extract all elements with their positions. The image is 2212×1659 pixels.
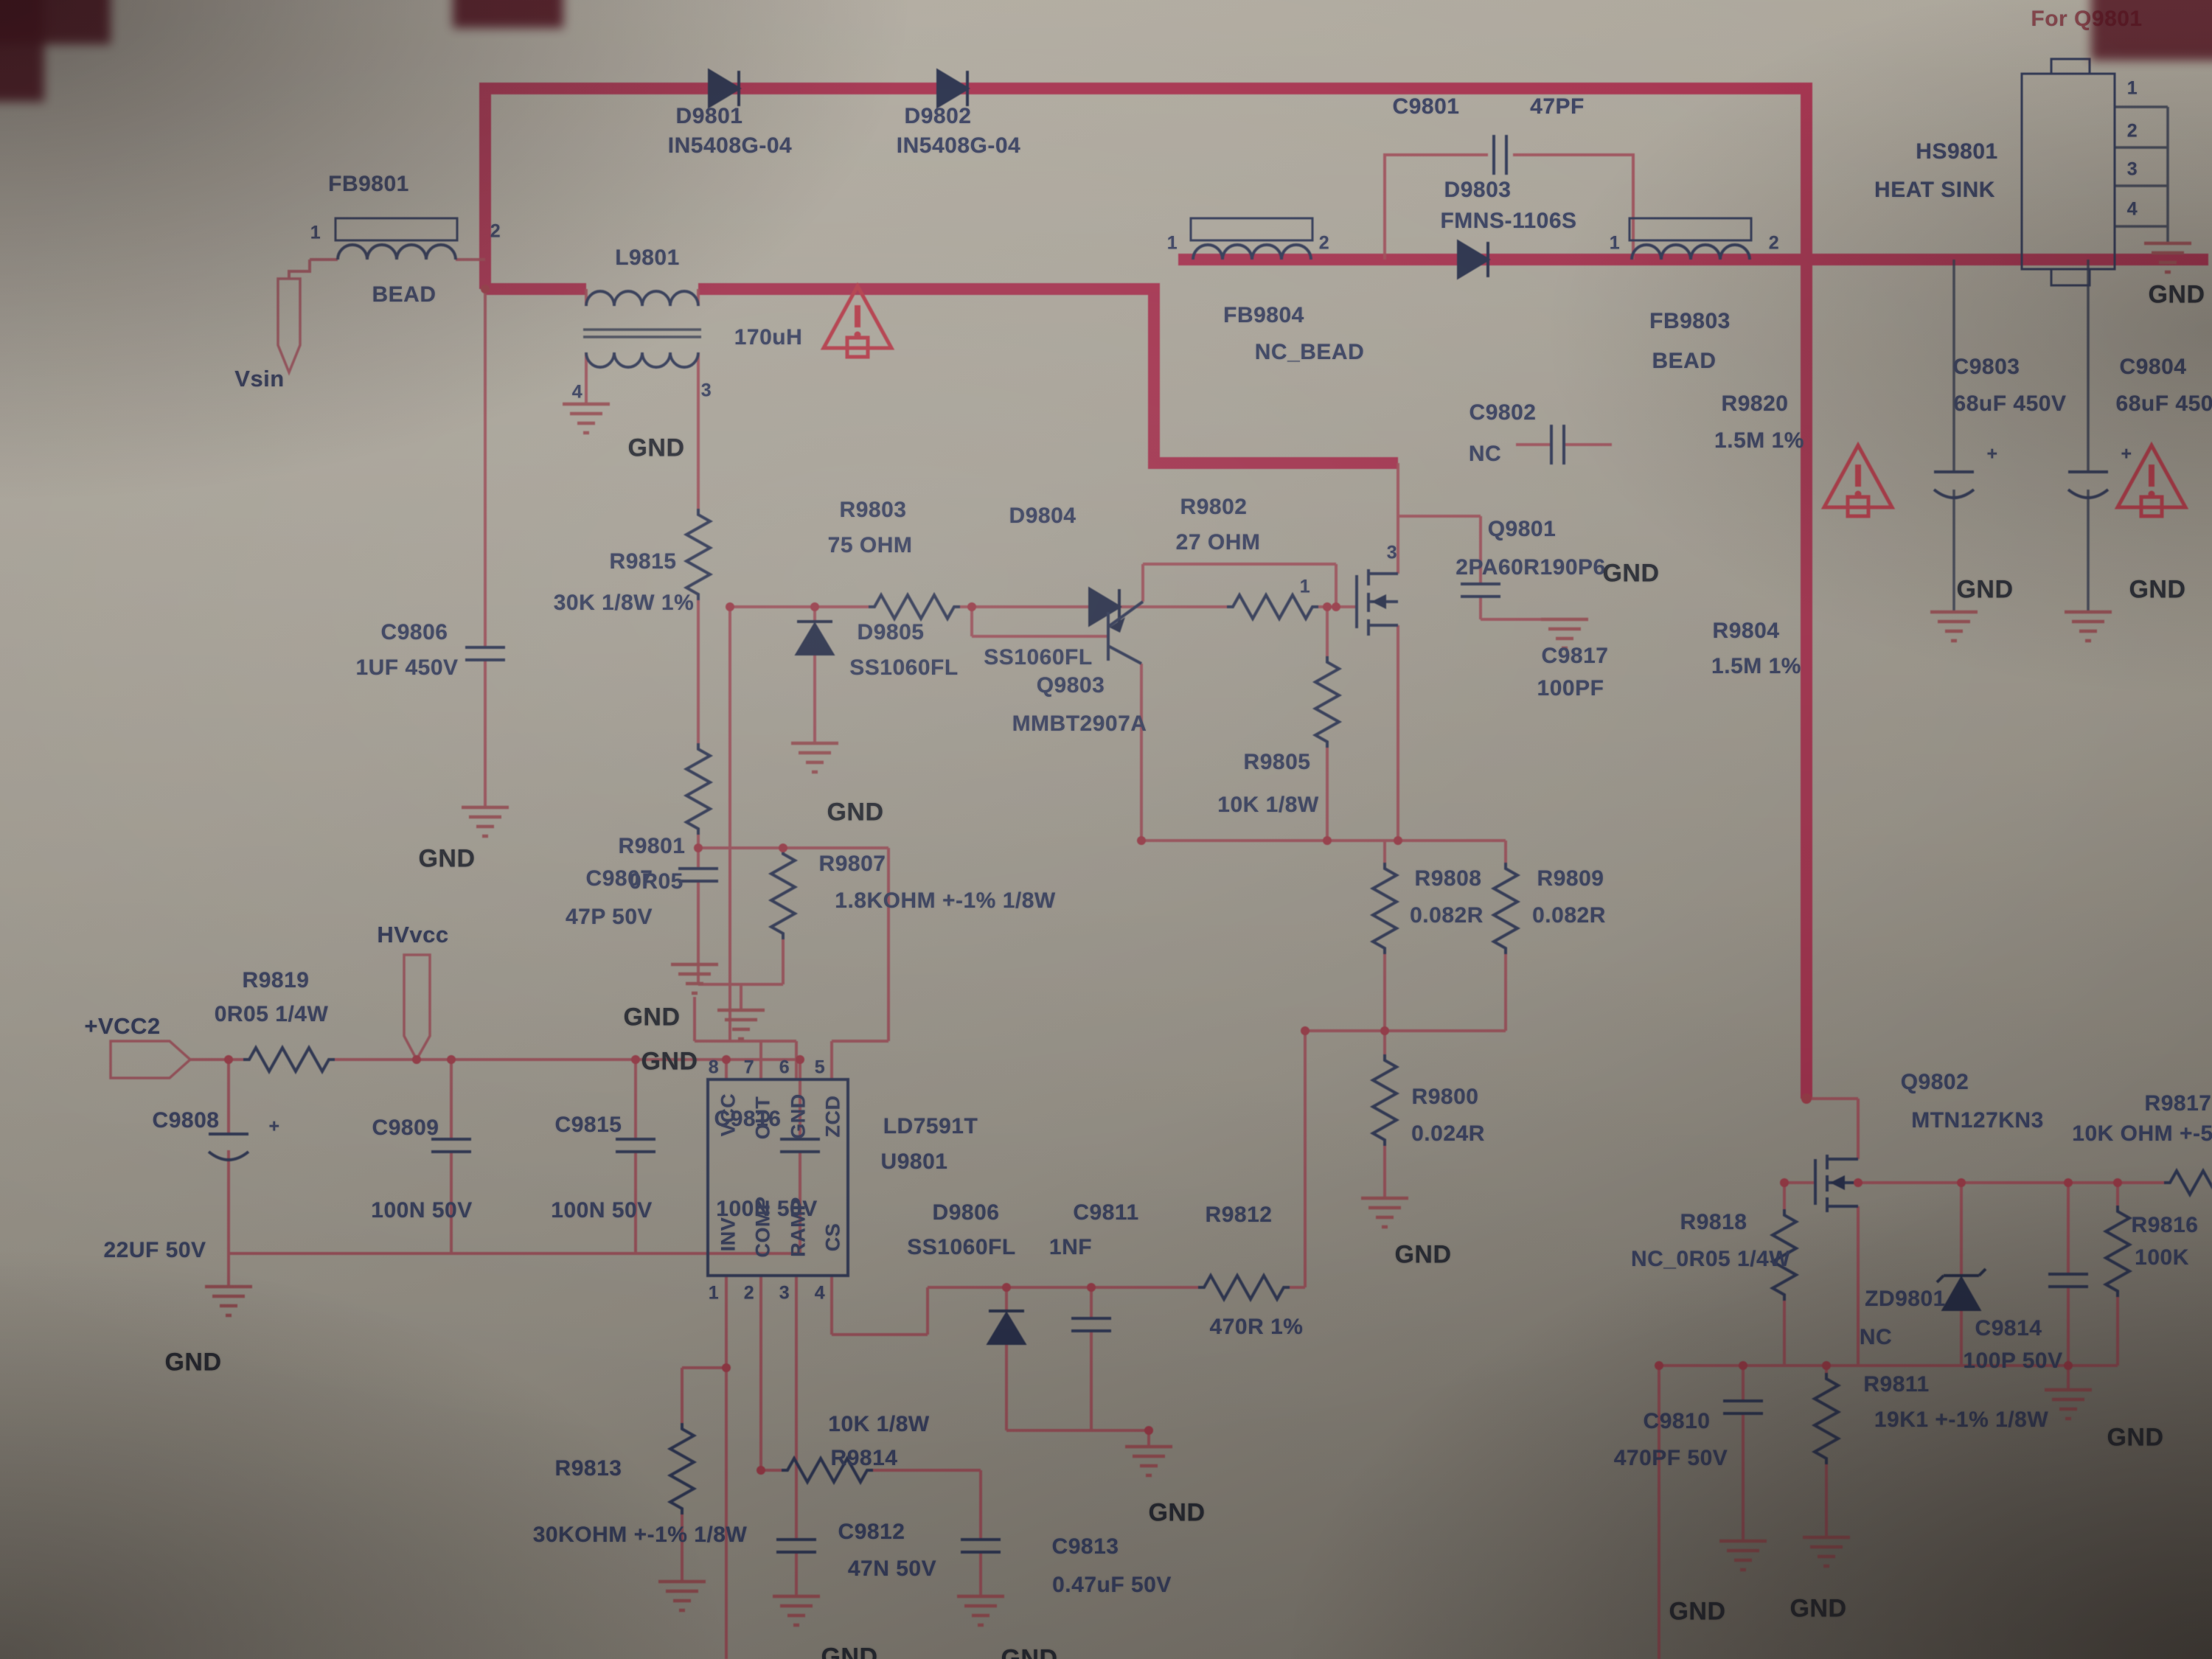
label-vcc2: +VCC2 xyxy=(84,1013,160,1040)
label-c9808-ref: C9808 xyxy=(153,1108,220,1133)
label-hs-pin1: 1 xyxy=(2127,78,2138,100)
label-c9802-val: NC xyxy=(1469,442,1501,467)
label-zd9801-ref: ZD9801 xyxy=(1865,1287,1946,1312)
label-hs-pin3: 3 xyxy=(2127,159,2138,181)
label-d9806-ref: D9806 xyxy=(933,1200,1000,1225)
label-c9812-val: 47N 50V xyxy=(848,1557,936,1582)
label-gnd-c9803: GND xyxy=(1956,576,2013,605)
label-r9803-ref: R9803 xyxy=(840,498,907,523)
label-u-out: OUT xyxy=(752,1096,775,1140)
label-c9815-val: 100N 50V xyxy=(551,1198,652,1223)
label-hs9801-ref: HS9801 xyxy=(1916,139,1997,164)
label-r9800-val: 0.024R xyxy=(1411,1121,1485,1147)
label-u-comp: COMP xyxy=(752,1197,775,1258)
label-vsin: Vsin xyxy=(234,366,284,392)
label-gnd-r9811: GND xyxy=(1790,1595,1846,1624)
label-fb9804-pin2: 2 xyxy=(1319,233,1329,254)
label-gnd-r9813: GND xyxy=(607,1657,664,1659)
schematic-labels: FB9801BEAD12VsinD9801IN5408G-04D9802IN54… xyxy=(0,0,2212,1659)
label-r9811-ref: R9811 xyxy=(1863,1372,1929,1397)
label-d9802-ref: D9802 xyxy=(905,104,972,129)
label-q9801-ref: Q9801 xyxy=(1488,517,1557,542)
label-fb9801-pin2: 2 xyxy=(490,221,501,243)
label-r9804-ref: R9804 xyxy=(1713,619,1780,644)
label-gnd-c9806: GND xyxy=(418,845,475,874)
label-gnd-c9811: GND xyxy=(1148,1499,1205,1528)
label-r9809-val: 0.082R xyxy=(1532,903,1606,928)
label-gnd-ic: GND xyxy=(623,1004,680,1032)
label-gnd-c9814: GND xyxy=(2107,1424,2163,1453)
label-c9813-val: 0.47uF 50V xyxy=(1052,1573,1172,1598)
label-d9806-val: SS1060FL xyxy=(907,1235,1015,1260)
label-c9807-ref: C9807 xyxy=(586,866,653,891)
label-hs-pin4: 4 xyxy=(2127,199,2138,220)
label-r9820-ref: R9820 xyxy=(1722,392,1789,417)
label-r9817-val: 10K OHM +-5 xyxy=(2072,1121,2212,1147)
label-l9801-pin4: 4 xyxy=(572,382,582,403)
label-u-p3: 3 xyxy=(779,1283,790,1304)
label-u-vcc: VCC xyxy=(717,1093,740,1137)
label-r9800-ref: R9800 xyxy=(1412,1085,1479,1110)
label-q9803-ref: Q9803 xyxy=(1037,673,1105,698)
label-r9807-val: 1.8KOHM +-1% 1/8W xyxy=(835,888,1055,914)
label-u-p8: 8 xyxy=(709,1057,719,1079)
label-c9814-val: 100P 50V xyxy=(1963,1349,2062,1374)
label-c9808-val: 22UF 50V xyxy=(103,1238,206,1263)
label-r9812-ref: R9812 xyxy=(1206,1203,1273,1228)
label-c9810-val: 470PF 50V xyxy=(1614,1446,1728,1471)
photo-dark-blob xyxy=(2091,0,2212,60)
label-r9803-val: 75 OHM xyxy=(828,533,913,558)
label-r9805-ref: R9805 xyxy=(1244,750,1311,775)
label-q9801-pin3: 3 xyxy=(1387,543,1397,564)
label-gnd-hs: GND xyxy=(2148,281,2205,310)
label-u-ramp: RAMP xyxy=(787,1197,810,1257)
label-r9801-ref: R9801 xyxy=(619,834,686,859)
label-gnd-c9804: GND xyxy=(2129,576,2185,605)
label-r9814-val: 10K 1/8W xyxy=(828,1412,929,1437)
label-fb9804-val: NC_BEAD xyxy=(1255,340,1365,365)
label-c9817-ref: C9817 xyxy=(1542,644,1609,669)
label-c9812-ref: C9812 xyxy=(838,1520,905,1545)
label-gnd-c9807: GND xyxy=(641,1048,698,1077)
label-c9804-ref: C9804 xyxy=(2120,355,2187,380)
label-gnd-c9817: GND xyxy=(1602,560,1659,588)
label-r9817-ref: R9817 xyxy=(2145,1091,2212,1116)
label-r9813-ref: R9813 xyxy=(555,1456,622,1481)
label-d9801-val: IN5408G-04 xyxy=(668,133,792,159)
label-c9813-ref: C9813 xyxy=(1052,1534,1119,1559)
label-r9804-val: 1.5M 1% xyxy=(1711,654,1801,679)
label-c9817-val: 100PF xyxy=(1537,676,1604,701)
label-q9802-ref: Q9802 xyxy=(1901,1070,1969,1095)
schematic-page: FB9801BEAD12VsinD9801IN5408G-04D9802IN54… xyxy=(0,0,2212,1659)
label-r9808-ref: R9808 xyxy=(1415,866,1482,891)
label-c9803-val: 68uF 450V xyxy=(1954,392,2067,417)
label-r9819-ref: R9819 xyxy=(243,968,310,993)
label-q9802-val: MTN127KN3 xyxy=(1911,1108,2044,1133)
label-r9815-val: 30K 1/8W 1% xyxy=(554,591,695,616)
label-r9819-val: 0R05 1/4W xyxy=(215,1002,329,1027)
label-gnd-d9805: GND xyxy=(827,799,883,827)
label-u-p2: 2 xyxy=(744,1283,754,1304)
label-c9804-val: 68uF 450V xyxy=(2116,392,2212,417)
label-d9804-ref: D9804 xyxy=(1009,504,1077,529)
label-l9801-ref: L9801 xyxy=(615,246,680,271)
label-c9801-ref: C9801 xyxy=(1393,94,1460,119)
label-gnd-c9813: GND xyxy=(1001,1645,1057,1659)
label-c9811-ref: C9811 xyxy=(1073,1200,1138,1225)
photo-dark-blob xyxy=(0,0,44,102)
label-l9801-val: 170uH xyxy=(734,325,803,350)
label-d9805-val: SS1060FL xyxy=(849,655,958,681)
label-c9803-ref: C9803 xyxy=(1953,355,2020,380)
label-u-p4: 4 xyxy=(815,1283,825,1304)
label-fb9801-ref: FB9801 xyxy=(328,172,409,197)
label-u-gnd: GND xyxy=(787,1093,810,1139)
photo-dark-blob xyxy=(453,0,563,28)
label-c9815-ref: C9815 xyxy=(555,1113,622,1138)
label-c9811-val: 1NF xyxy=(1049,1235,1092,1260)
label-d9803-val: FMNS-1106S xyxy=(1440,209,1576,234)
label-d9805-ref: D9805 xyxy=(858,620,925,645)
label-r9816-ref: R9816 xyxy=(2132,1213,2199,1238)
label-c9806-ref: C9806 xyxy=(381,620,448,645)
label-u-p6: 6 xyxy=(779,1057,790,1079)
label-q9803-val: MMBT2907A xyxy=(1012,712,1147,737)
label-r9815-ref: R9815 xyxy=(610,549,677,574)
label-r9802-val: 27 OHM xyxy=(1176,530,1261,555)
label-u9801-ref: U9801 xyxy=(881,1150,948,1175)
label-c9807-val: 47P 50V xyxy=(566,905,653,930)
label-d9802-val: IN5408G-04 xyxy=(897,133,1020,159)
label-gnd-c9812: GND xyxy=(821,1644,877,1659)
label-hvvcc: HVvcc xyxy=(377,922,448,948)
label-gnd-c9810: GND xyxy=(1669,1598,1725,1627)
label-c9809-ref: C9809 xyxy=(372,1116,439,1141)
label-fb9801-pin1: 1 xyxy=(310,223,321,244)
label-r9818-ref: R9818 xyxy=(1680,1210,1747,1235)
label-c9803-plus: + xyxy=(1986,444,1997,465)
label-fb9803-val: BEAD xyxy=(1652,349,1716,374)
label-fb9801-val: BEAD xyxy=(372,282,436,307)
label-fb9804-pin1: 1 xyxy=(1167,233,1178,254)
label-r9820-val: 1.5M 1% xyxy=(1714,428,1804,453)
label-d9803-ref: D9803 xyxy=(1444,178,1512,203)
label-gnd-l9801: GND xyxy=(627,434,684,463)
label-u-inv: INV xyxy=(717,1217,740,1252)
label-q9801-pin1: 1 xyxy=(1300,577,1310,598)
label-u-zcd: ZCD xyxy=(822,1096,845,1138)
label-u-p7: 7 xyxy=(744,1057,754,1079)
label-fb9803-ref: FB9803 xyxy=(1649,309,1731,334)
label-c9808-plus: + xyxy=(268,1116,279,1138)
label-hs9801-val: HEAT SINK xyxy=(1874,178,1995,203)
label-r9814-ref: R9814 xyxy=(831,1446,898,1471)
label-fb9803-pin1: 1 xyxy=(1610,233,1620,254)
label-u-p1: 1 xyxy=(709,1283,719,1304)
label-fb9804-ref: FB9804 xyxy=(1223,303,1304,328)
label-fb9803-pin2: 2 xyxy=(1769,233,1779,254)
label-gnd-r9800: GND xyxy=(1394,1241,1451,1270)
label-u9801-part: LD7591T xyxy=(883,1114,978,1139)
label-c9802-ref: C9802 xyxy=(1470,400,1537,425)
label-hs-pin2: 2 xyxy=(2127,121,2138,142)
label-c9806-val: 1UF 450V xyxy=(355,655,458,681)
label-r9807-ref: R9807 xyxy=(819,852,886,877)
label-c9804-plus: + xyxy=(2121,444,2132,465)
label-r9812-val: 470R 1% xyxy=(1210,1315,1304,1340)
label-c9801-val: 47PF xyxy=(1530,94,1585,119)
label-d9801-ref: D9801 xyxy=(676,104,743,129)
label-c9810-ref: C9810 xyxy=(1644,1409,1711,1434)
label-u-cs: CS xyxy=(822,1223,845,1252)
label-r9813-val: 30KOHM +-1% 1/8W xyxy=(533,1523,748,1548)
label-r9809-ref: R9809 xyxy=(1537,866,1604,891)
label-gnd-c9808: GND xyxy=(164,1349,221,1377)
label-c9814-ref: C9814 xyxy=(1975,1316,2042,1341)
label-r9816-val: 100K xyxy=(2135,1245,2189,1270)
label-r9805-val: 10K 1/8W xyxy=(1217,793,1318,818)
label-l9801-pin3: 3 xyxy=(701,380,712,402)
label-r9811-val: 19K1 +-1% 1/8W xyxy=(1874,1408,2048,1433)
label-q9801-val: 2PA60R190P6 xyxy=(1455,555,1605,580)
label-zd9801-val: NC xyxy=(1860,1325,1892,1350)
label-u-p5: 5 xyxy=(815,1057,825,1079)
label-d9804-val: SS1060FL xyxy=(984,645,1092,670)
label-r9808-val: 0.082R xyxy=(1410,903,1484,928)
label-c9809-val: 100N 50V xyxy=(371,1198,472,1223)
label-r9818-val: NC_0R05 1/4W xyxy=(1631,1247,1790,1272)
label-r9802-ref: R9802 xyxy=(1180,495,1248,520)
